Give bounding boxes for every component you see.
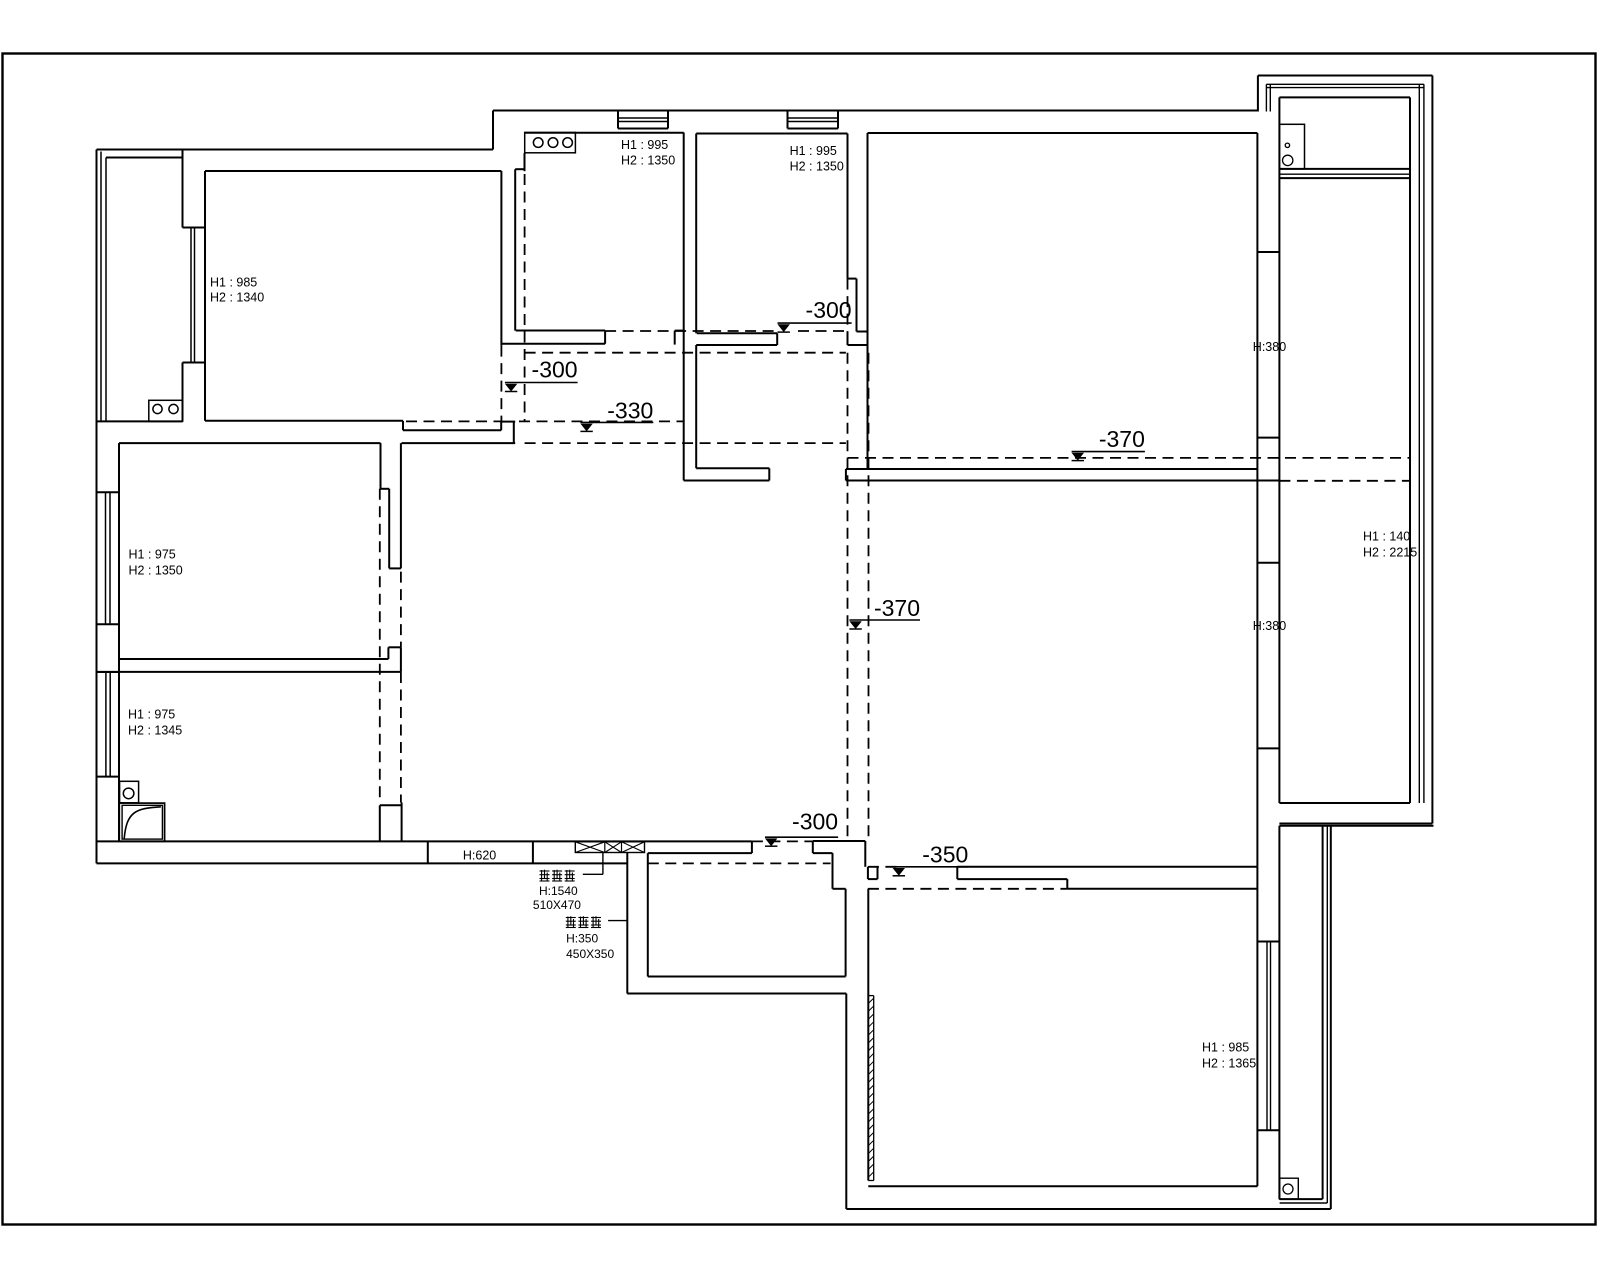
svg-text:H:380: H:380: [1253, 340, 1286, 354]
svg-text:510X470: 510X470: [533, 898, 581, 912]
svg-text:H1 : 975: H1 : 975: [128, 708, 175, 722]
svg-text:H2 : 1365: H2 : 1365: [1202, 1057, 1256, 1071]
svg-text:H1 : 975: H1 : 975: [129, 548, 176, 562]
svg-text:450X350: 450X350: [566, 947, 614, 961]
svg-text:H2 : 1350: H2 : 1350: [621, 153, 675, 167]
svg-text:H1 : 140: H1 : 140: [1363, 530, 1410, 544]
svg-text:H2 : 1350: H2 : 1350: [790, 160, 844, 174]
svg-text:H2 : 1345: H2 : 1345: [128, 724, 182, 738]
svg-text:H1 : 995: H1 : 995: [790, 144, 837, 158]
svg-text:H2 : 1350: H2 : 1350: [129, 564, 183, 578]
svg-text:-330: -330: [607, 397, 653, 423]
svg-text:-300: -300: [806, 297, 852, 323]
svg-text:H:380: H:380: [1253, 619, 1286, 633]
svg-text:H:350: H:350: [566, 931, 598, 945]
svg-text:-350: -350: [922, 842, 968, 868]
svg-text:H2 : 2215: H2 : 2215: [1363, 546, 1417, 560]
svg-text:H:1540: H:1540: [539, 884, 578, 898]
svg-text:H:620: H:620: [463, 848, 496, 862]
svg-text:-370: -370: [874, 595, 920, 621]
svg-text:-300: -300: [792, 809, 838, 835]
svg-text:H1 : 985: H1 : 985: [210, 276, 257, 290]
svg-text:H2 : 1340: H2 : 1340: [210, 291, 264, 305]
svg-text:H1 : 995: H1 : 995: [621, 138, 668, 152]
svg-text:-370: -370: [1099, 426, 1145, 452]
svg-text:-300: -300: [532, 357, 578, 383]
svg-text:H1 : 985: H1 : 985: [1202, 1041, 1249, 1055]
